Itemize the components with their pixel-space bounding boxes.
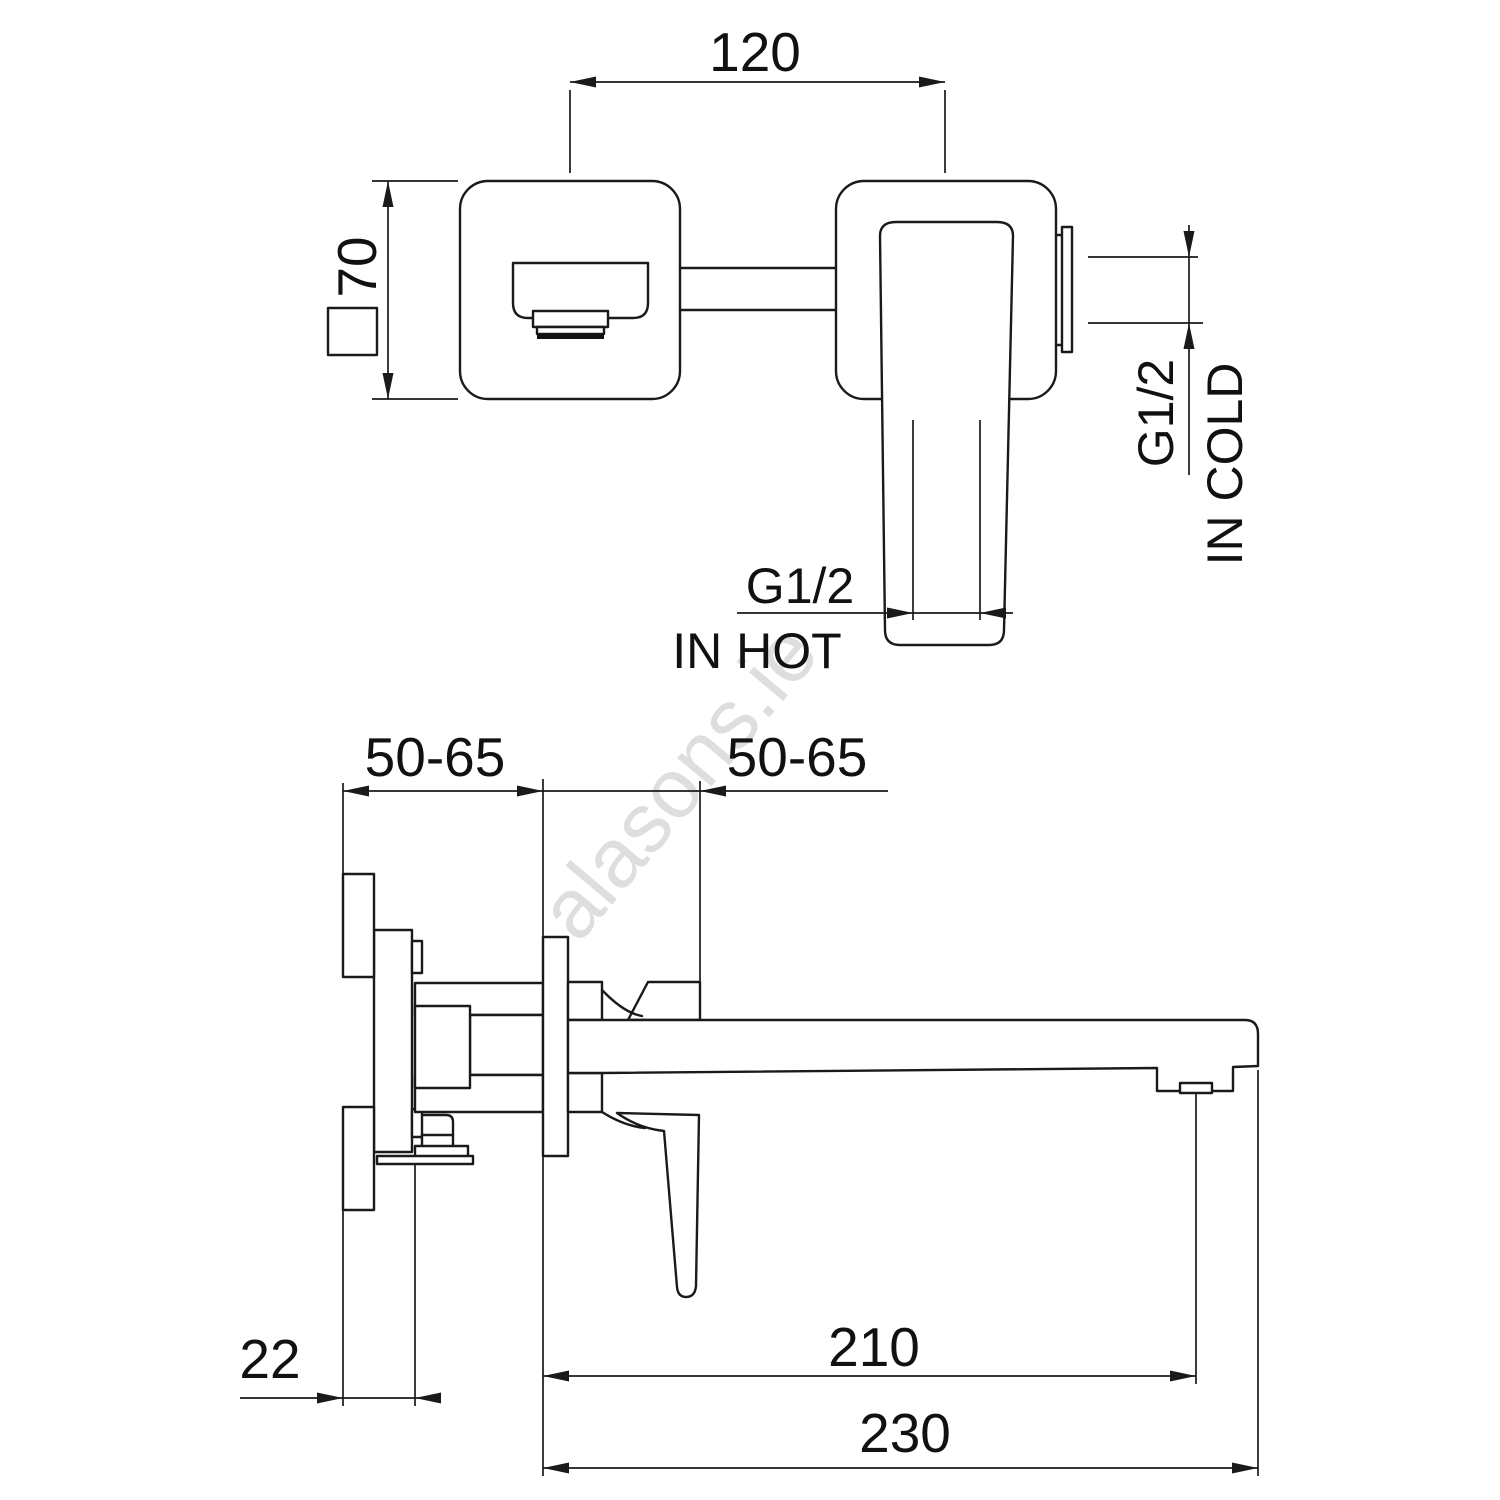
side-view: 50-65 50-65 22 210 (239, 726, 1258, 1476)
dim-cold-inlet: G1/2 IN COLD (1088, 225, 1253, 565)
body-lower (568, 1073, 602, 1112)
supply-pipe-middle (470, 1015, 543, 1075)
dim-arrow (383, 181, 394, 207)
spout-aerator-slot (537, 334, 604, 339)
dim-plate-size: 70 (326, 181, 458, 399)
cold-inlet-label: IN COLD (1197, 363, 1253, 566)
faucet-dimension-drawing: alasons.ie 120 (0, 0, 1500, 1500)
rough-in-tab-top (412, 941, 422, 973)
cartridge-housing (415, 1006, 470, 1088)
spout-opening (513, 263, 648, 318)
dim-label-210: 210 (828, 1316, 920, 1378)
dim-label-50-65-left: 50-65 (365, 726, 506, 788)
dim-arrow (1184, 323, 1195, 349)
spout-lip-step (537, 327, 604, 334)
wall-plate-upper (343, 874, 374, 977)
front-view: 120 70 G1/2 IN COLD (326, 21, 1253, 679)
dim-arrow (570, 77, 596, 88)
lever-handle-front (880, 222, 1013, 645)
spout-side (568, 1020, 1258, 1091)
dim-arrow (517, 786, 543, 797)
dim-label-50-65-right: 50-65 (727, 726, 868, 788)
dim-plate-pitch: 120 (570, 21, 945, 173)
dim-plate-thickness: 22 (239, 1164, 441, 1406)
dim-arrow (919, 77, 945, 88)
dim-label-70: 70 (326, 236, 388, 297)
dim-arrow (415, 1393, 441, 1404)
dim-arrow (1170, 1371, 1196, 1382)
dim-arrow (317, 1393, 343, 1404)
inlet-bracket-step (422, 1115, 453, 1135)
mounting-strip (377, 1156, 473, 1164)
dim-label-120: 120 (709, 21, 801, 83)
lever-grip-side (617, 1113, 699, 1297)
dim-arrow (543, 1371, 569, 1382)
dim-label-230: 230 (859, 1402, 951, 1464)
hot-thread-label: G1/2 (746, 558, 854, 614)
dim-label-22: 22 (239, 1328, 300, 1390)
valve-stem-stub (1062, 227, 1072, 352)
body-upper (568, 982, 602, 1020)
dim-arrow (543, 1463, 569, 1474)
dim-spout-reach: 230 (543, 1070, 1258, 1476)
aerator-insert (1180, 1083, 1212, 1093)
spout-lip (533, 311, 608, 327)
trim-plate (543, 937, 568, 1156)
rough-in-body (374, 930, 412, 1152)
wall-plate-lower (343, 1107, 374, 1210)
dim-arrow (383, 373, 394, 399)
dim-arrow (1232, 1463, 1258, 1474)
dim-arrow (1184, 231, 1195, 257)
square-section-symbol (328, 308, 377, 355)
cold-thread-label: G1/2 (1128, 359, 1184, 467)
hot-inlet-label: IN HOT (672, 623, 841, 679)
